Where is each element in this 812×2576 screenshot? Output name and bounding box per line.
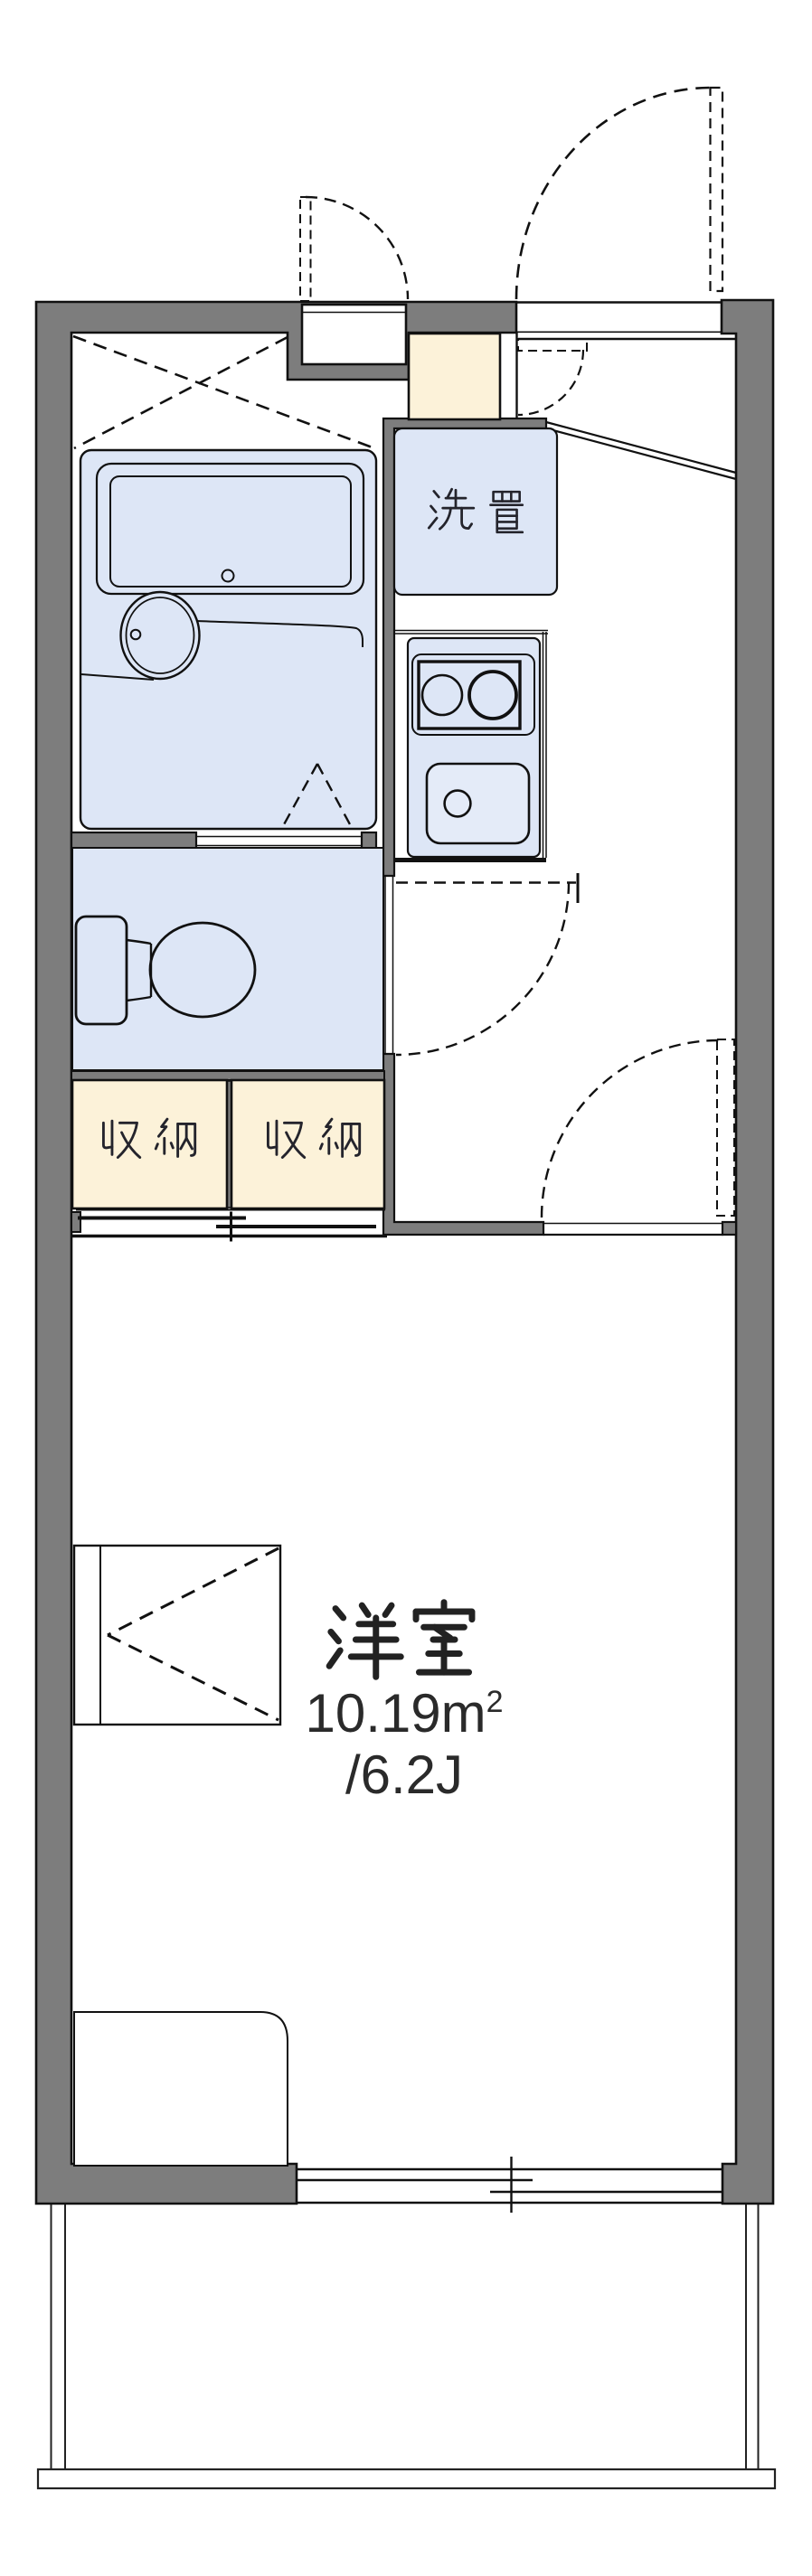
svg-text:/6.2J: /6.2J bbox=[345, 1744, 463, 1805]
svg-text:10.19m2: 10.19m2 bbox=[305, 1683, 503, 1744]
